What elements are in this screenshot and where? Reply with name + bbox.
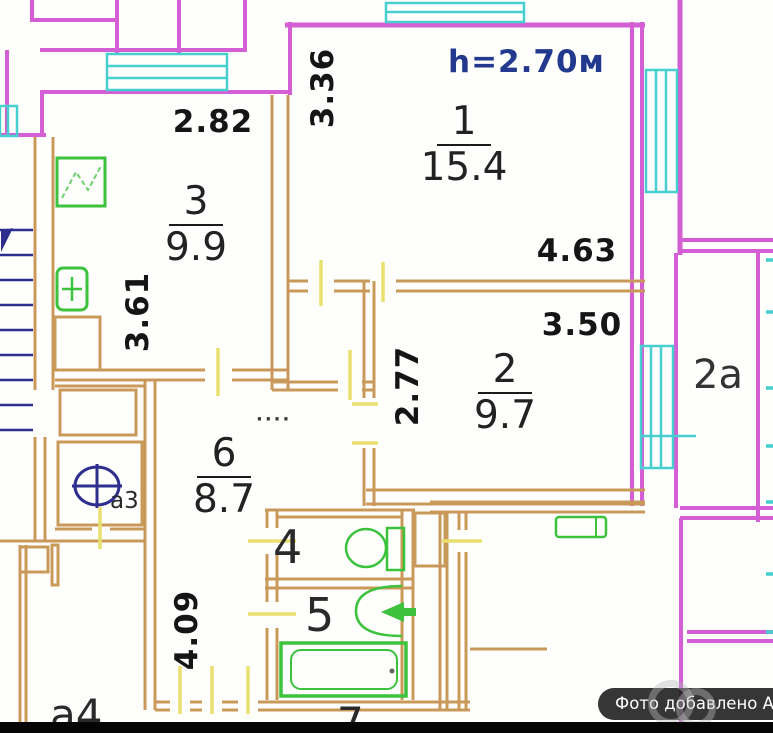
dimension-3-61: 3.61 — [120, 257, 156, 367]
dimension-4-09: 4.09 — [169, 575, 205, 685]
room-1-area: 15.4 — [421, 146, 508, 190]
dimension-3-36: 3.36 — [305, 33, 341, 143]
kitchen-sink-icon — [556, 517, 606, 537]
room-1-label: 1 15.4 — [404, 100, 524, 189]
room-4-label: 4 — [273, 520, 302, 574]
hall-dots: ···· — [256, 409, 291, 430]
room-2-area: 9.7 — [474, 394, 536, 438]
room-1-number: 1 — [437, 100, 492, 146]
stove-icon — [57, 158, 105, 206]
dimension-2-77: 2.77 — [390, 331, 426, 441]
stairs-icon — [0, 228, 33, 430]
room-3-number: 3 — [169, 180, 224, 226]
stairs-arrow-icon — [1, 228, 13, 252]
bottom-black-bar — [0, 722, 773, 733]
room-3-area: 9.9 — [165, 226, 227, 270]
bathtub-icon — [281, 643, 406, 696]
floor-plan-screenshot: 2.82 3.36 3.61 4.63 3.50 2.77 4.09 h=2.7… — [0, 0, 773, 733]
room-3-label: 3 9.9 — [136, 180, 256, 269]
room-6-number: 6 — [197, 432, 252, 478]
dimension-3-50: 3.50 — [532, 307, 632, 343]
dimension-2-82: 2.82 — [168, 104, 258, 140]
bath-sink-icon — [356, 586, 416, 636]
ceiling-height-label: h=2.70м — [448, 44, 605, 80]
toilet-icon — [346, 528, 404, 570]
room-a3-label: а3 — [110, 488, 139, 514]
room-2a-label: 2а — [693, 352, 743, 398]
vent-plus-icon — [57, 268, 87, 310]
room-2-number: 2 — [478, 348, 533, 394]
door-marks — [100, 260, 482, 714]
room-5-label: 5 — [305, 588, 334, 642]
room-6-area: 8.7 — [193, 478, 255, 522]
window-ticks — [766, 260, 773, 632]
room-6-label: 6 8.7 — [164, 432, 284, 521]
dimension-4-63: 4.63 — [527, 233, 627, 269]
room-2-label: 2 9.7 — [445, 348, 565, 437]
floor-plan-drawing — [0, 0, 773, 733]
